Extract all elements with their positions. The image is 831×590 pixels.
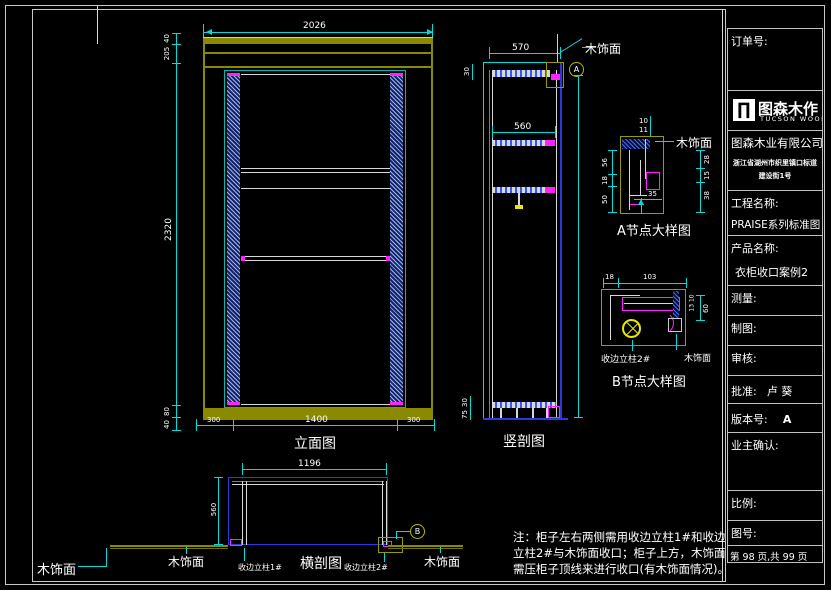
dim-tick — [608, 174, 617, 175]
view-title-detail-a: A节点大样图 — [617, 220, 691, 239]
view-title-detail-b: B节点大样图 — [612, 371, 686, 390]
shelf-end — [241, 256, 245, 261]
dim-tick — [574, 75, 583, 76]
dim-line — [492, 132, 556, 133]
side-line — [382, 481, 383, 545]
dim-label: 56 — [602, 158, 609, 167]
leader-line — [186, 547, 187, 554]
dim-tick — [696, 295, 705, 296]
product-value: 衣柜收口案例2 — [735, 264, 819, 280]
back-panel-line — [489, 70, 490, 418]
dim-label: 2320 — [165, 218, 174, 241]
frame-double-line — [722, 9, 723, 581]
dim-tick — [434, 419, 435, 431]
veneer-board-right — [388, 545, 463, 547]
veneer-label: 木饰面 — [424, 553, 460, 570]
joint-block — [551, 74, 560, 80]
dim-tick — [397, 419, 398, 431]
leader-arrow — [638, 196, 644, 205]
leader-line — [655, 141, 674, 142]
shelf-edge — [545, 187, 555, 193]
shelf-bracket-foot — [515, 205, 523, 209]
dim-label: 75 — [462, 410, 469, 419]
veneer-label: 木饰面 — [37, 559, 76, 578]
leader-line — [632, 340, 633, 351]
shelf-line — [241, 74, 390, 75]
dim-line — [176, 33, 177, 431]
veneer-board-left — [110, 545, 228, 547]
dim-tick — [608, 212, 617, 213]
dim-tick — [618, 278, 619, 288]
veneer-label: 木饰面 — [585, 40, 621, 57]
dim-label: 1196 — [298, 460, 321, 469]
notes: 注：柜子左右两侧需用收边立柱1#和收边 立柱2#与木饰面收口；柜子上方，木饰面 … — [513, 529, 729, 577]
dim-label: 30 — [464, 67, 471, 76]
dim-label: 18 — [602, 176, 609, 185]
note-line: 立柱2#与木饰面收口；柜子上方，木饰面 — [513, 545, 729, 561]
scale-row: 比例: — [727, 490, 823, 521]
view-title-vsection: 竖剖图 — [503, 431, 545, 451]
dim-label: 35 — [648, 191, 657, 198]
edge-post-1 — [227, 73, 240, 405]
view-title-elevation: 立面图 — [294, 433, 336, 453]
dim-tick — [172, 63, 181, 64]
logo-brand-en: TUCSON WOOD — [760, 115, 823, 123]
dim-label: 15 — [704, 171, 711, 180]
company-address-1: 浙江省湖州市织里镇口标道 — [731, 158, 819, 168]
shelf-line — [241, 168, 390, 169]
shelf-board — [492, 140, 545, 146]
leader-line — [106, 548, 107, 567]
project-label: 工程名称: — [731, 195, 819, 211]
dim-label: 60 — [703, 304, 710, 313]
leader-line — [78, 566, 106, 567]
dim-line — [489, 53, 560, 54]
dim-tick — [172, 44, 181, 45]
logo-row: ∏ 图森木作 TUCSON WOOD — [727, 90, 823, 131]
measure-label: 测量: — [731, 290, 819, 306]
leader-line — [244, 548, 245, 561]
edge-post-2 — [390, 73, 403, 405]
dim-line — [603, 283, 686, 284]
leg — [500, 408, 502, 418]
owner-label: 业主确认: — [731, 437, 819, 453]
dim-label: 80 — [164, 407, 171, 416]
dim-tick — [696, 212, 705, 213]
panel-line — [640, 160, 641, 195]
joint-block — [646, 172, 660, 190]
post-cap — [390, 73, 403, 76]
post-cap — [227, 73, 240, 76]
cad-sheet: 2026 40 205 2320 — [0, 0, 831, 590]
leader-line — [440, 547, 441, 553]
dim-tick — [196, 419, 197, 431]
dim-label: 2026 — [303, 22, 326, 31]
view-title-plan: 横剖图 — [300, 553, 342, 573]
dim-tick — [172, 430, 181, 431]
dim-line — [578, 75, 579, 418]
review-row: 审核: — [727, 345, 823, 376]
dim-label: 300 — [407, 417, 420, 424]
dim-tick — [242, 463, 243, 475]
dim-label: 11 — [639, 127, 648, 134]
draft-label: 制图: — [731, 320, 819, 336]
edge-post-1-label: 收边立柱1# — [238, 562, 282, 573]
crown-line — [203, 66, 433, 68]
inner-line — [232, 484, 384, 485]
shelf-line — [241, 256, 390, 257]
cabinet-outline — [224, 70, 406, 408]
post-cap — [227, 402, 240, 405]
dim-label: 50 — [602, 195, 609, 204]
dim-tick — [214, 477, 223, 478]
page-info: 第 98 页,共 99 页 — [730, 549, 820, 563]
fold-mark — [97, 6, 98, 44]
panel-line — [610, 295, 611, 340]
company-row: 图森木业有限公司 浙江省湖州市织里镇口标道 建设街1号 — [727, 130, 823, 191]
approve-row: 批准: 卢 葵 — [727, 375, 823, 404]
project-value: PRAISE系列标准图 — [731, 217, 819, 232]
dim-tick — [489, 47, 490, 59]
wall-line — [483, 62, 484, 420]
back-line — [232, 481, 384, 482]
shelf-end — [386, 256, 390, 261]
order-label: 订单号: — [731, 33, 819, 49]
dim-label: 1400 — [305, 416, 328, 425]
shelf-line — [241, 172, 390, 173]
note-line: 注：柜子左右两侧需用收边立柱1#和收边 — [513, 529, 729, 545]
inner-line — [556, 70, 557, 418]
shelf-edge — [545, 140, 555, 146]
project-row: 工程名称: PRAISE系列标准图 — [727, 190, 823, 236]
dim-tick — [492, 126, 493, 138]
shelf-line — [241, 260, 390, 261]
dim-label: 560 — [211, 503, 218, 516]
post-section-circle — [622, 319, 641, 338]
dim-line — [634, 199, 662, 200]
dim-tick — [686, 278, 687, 288]
joint-block — [230, 539, 242, 546]
dim-tick — [386, 463, 387, 475]
note-line: 需压柜子顶线来进行收口(有木饰面情况)。 — [513, 561, 729, 577]
scale-label: 比例: — [731, 495, 819, 511]
owner-row: 业主确认: — [727, 432, 823, 491]
dim-tick — [696, 182, 705, 183]
detail-bubble-b: B — [410, 524, 425, 539]
company-name: 图森木业有限公司 — [731, 135, 819, 151]
post-cap — [390, 402, 403, 405]
dim-tick — [608, 186, 617, 187]
base-joint — [548, 406, 560, 418]
veneer-label: 木饰面 — [684, 351, 711, 364]
figno-label: 图号: — [731, 525, 819, 541]
dim-tick — [696, 320, 705, 321]
leader-line — [396, 531, 397, 539]
dim-label: 28 — [704, 155, 711, 164]
dim-label: 300 — [207, 417, 220, 424]
hatch-strip — [673, 291, 679, 318]
order-row: 订单号: — [727, 28, 823, 91]
dim-tick — [603, 278, 604, 288]
veneer-board-left-line — [110, 548, 228, 549]
dim-tick — [555, 126, 556, 138]
dim-line — [612, 150, 613, 212]
leader-line — [396, 531, 410, 532]
tucson-logo-icon: ∏ — [733, 99, 755, 121]
version-row: 版本号: A — [727, 403, 823, 433]
veneer-line — [557, 34, 558, 62]
side-line — [246, 481, 247, 545]
dim-tick — [574, 417, 583, 418]
company-address-2: 建设街1号 — [731, 171, 819, 181]
panel-line — [610, 295, 640, 296]
veneer-bar — [622, 297, 680, 311]
dim-label: 40 — [164, 34, 171, 43]
plan-outline — [228, 477, 388, 545]
veneer-board-right-line — [388, 548, 463, 549]
dim-tick — [172, 405, 181, 406]
dim-label: 205 — [164, 47, 171, 60]
figno-row: 图号: — [727, 520, 823, 546]
edge-post-label: 收边立柱2# — [601, 352, 650, 365]
dim-tick — [172, 417, 181, 418]
veneer-label: 木饰面 — [168, 553, 204, 570]
dim-label: 570 — [512, 44, 529, 53]
dim-tick — [233, 419, 234, 431]
dim-line — [700, 295, 701, 321]
dim-line — [472, 64, 473, 80]
dim-line — [242, 469, 386, 470]
shelf-line — [241, 188, 390, 189]
measure-row: 测量: — [727, 285, 823, 316]
dim-arrow — [427, 29, 436, 35]
edge-post-2-label: 收边立柱2# — [344, 562, 388, 573]
side-line — [386, 481, 387, 545]
leader-line — [676, 334, 677, 350]
bottom-line — [241, 404, 390, 405]
crown-band — [203, 38, 433, 44]
dim-label: 13 10 — [690, 294, 696, 311]
dim-tick — [696, 150, 705, 151]
dim-tick — [696, 168, 705, 169]
top-board — [492, 70, 550, 77]
floor-line — [483, 418, 568, 420]
dim-label: 10 — [639, 118, 648, 125]
front-line — [560, 62, 562, 420]
review-label: 审核: — [731, 350, 819, 366]
dim-line — [700, 150, 701, 212]
dim-line — [650, 116, 651, 136]
dim-tick — [172, 33, 181, 34]
approve-label: 批准: — [731, 385, 757, 398]
side-line — [242, 481, 243, 545]
version-label: 版本号: — [731, 413, 768, 426]
version-value: A — [783, 413, 792, 426]
dim-label: 38 — [704, 191, 711, 200]
page-row: 第 98 页,共 99 页 — [727, 545, 823, 563]
product-row: 产品名称: 衣柜收口案例2 — [727, 235, 823, 286]
dim-line — [196, 425, 434, 426]
leg — [532, 408, 534, 418]
panel-line — [629, 150, 630, 210]
dim-label: 30 — [462, 398, 469, 407]
wall-right — [431, 38, 433, 420]
draft-row: 制图: — [727, 315, 823, 346]
inner-line — [492, 70, 493, 418]
dim-arrow — [203, 29, 212, 35]
product-label: 产品名称: — [731, 240, 819, 256]
dim-line — [470, 396, 471, 420]
leader-line — [384, 553, 385, 562]
dim-label: 40 — [164, 420, 171, 429]
dim-line — [203, 32, 433, 33]
veneer-block — [668, 318, 682, 332]
shelf-bracket — [518, 193, 520, 205]
crown-line — [203, 52, 433, 54]
dim-tick — [608, 150, 617, 151]
dim-label: 560 — [514, 123, 531, 132]
wall-left — [203, 38, 205, 420]
approve-value: 卢 葵 — [767, 385, 793, 398]
veneer-label: 木饰面 — [676, 134, 712, 151]
leg — [516, 408, 518, 418]
dim-label: 18 — [605, 274, 614, 281]
veneer-bar-line — [624, 303, 678, 304]
dim-label: 103 — [643, 274, 656, 281]
